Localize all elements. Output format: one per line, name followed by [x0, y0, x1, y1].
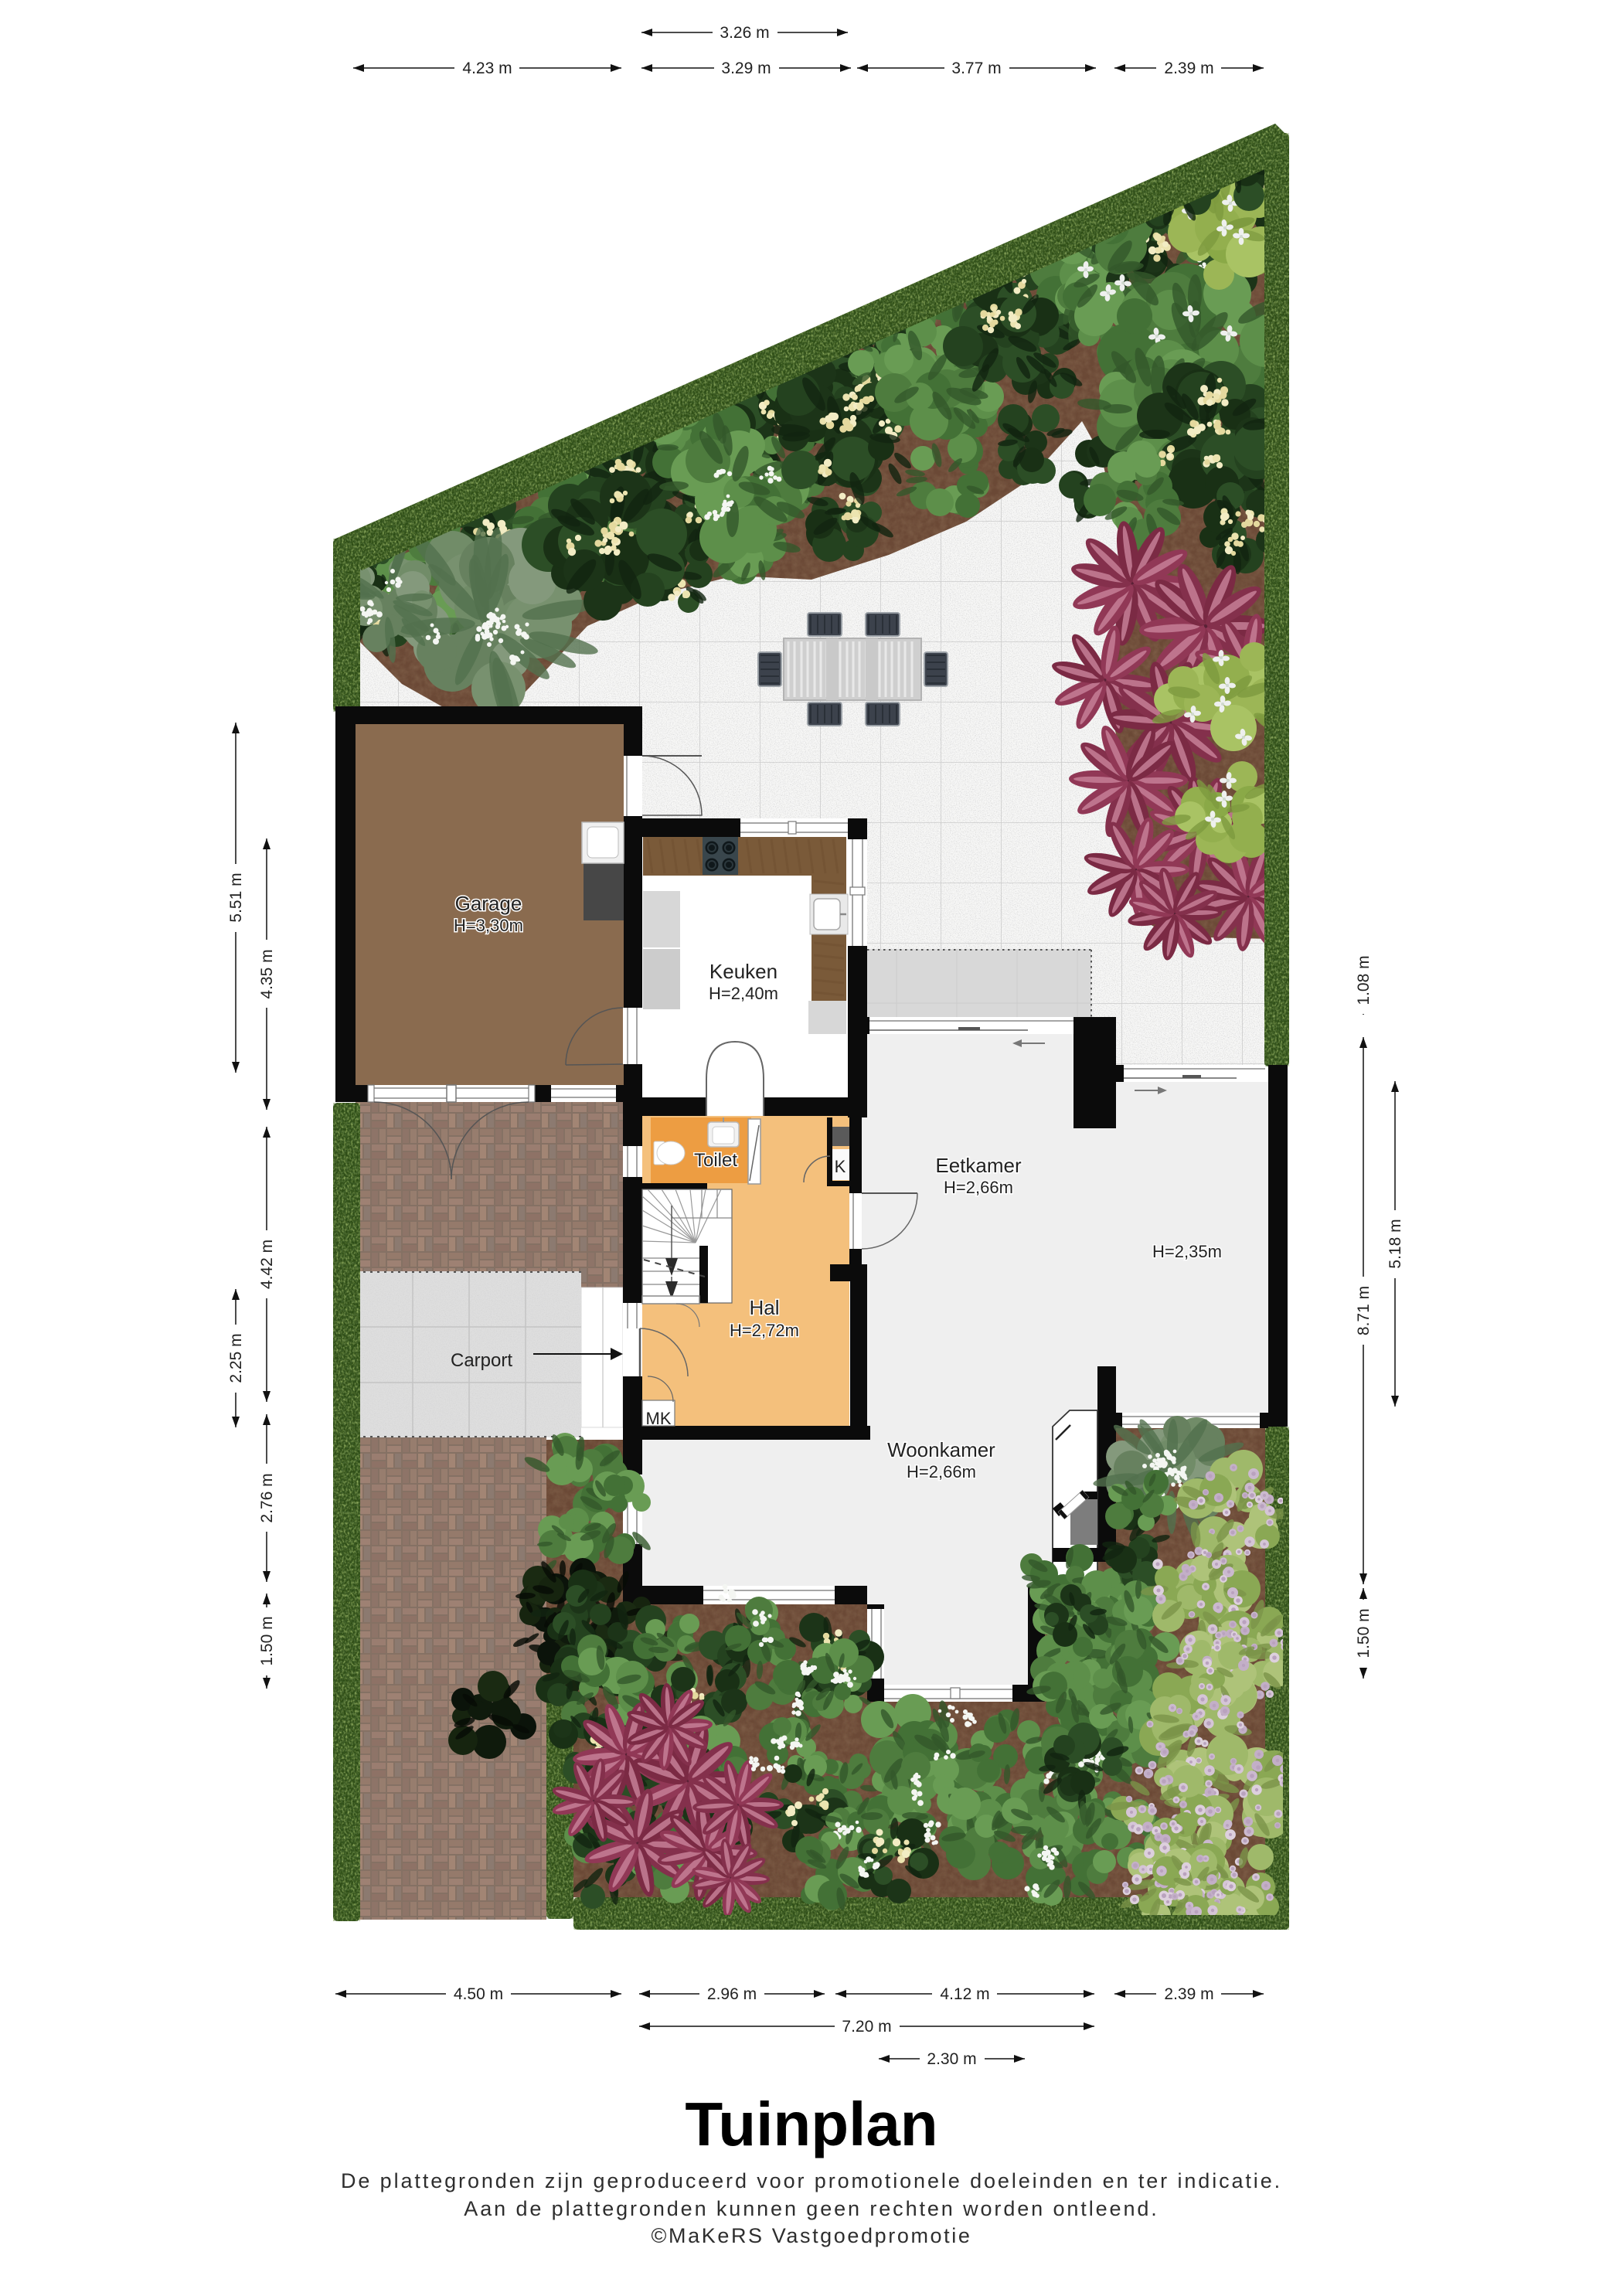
svg-text:4.50 m: 4.50 m: [454, 1985, 503, 2003]
svg-text:K: K: [835, 1157, 846, 1176]
svg-text:Tuinplan: Tuinplan: [685, 2090, 937, 2158]
svg-text:H=2,66m: H=2,66m: [907, 1462, 976, 1481]
svg-text:5.18 m: 5.18 m: [1387, 1219, 1404, 1268]
svg-text:2.96 m: 2.96 m: [707, 1985, 757, 2003]
svg-text:Carport: Carport: [451, 1350, 512, 1371]
svg-text:1.50 m: 1.50 m: [258, 1616, 276, 1665]
svg-text:Hal: Hal: [749, 1296, 779, 1319]
svg-text:4.23 m: 4.23 m: [462, 60, 512, 77]
svg-text:3.77 m: 3.77 m: [951, 60, 1001, 77]
svg-text:2.30 m: 2.30 m: [927, 2050, 976, 2068]
svg-text:1.08 m: 1.08 m: [1355, 955, 1373, 1005]
svg-text:7.20 m: 7.20 m: [842, 2018, 891, 2036]
svg-text:De plattegronden zijn geproduc: De plattegronden zijn geproduceerd voor …: [341, 2169, 1282, 2192]
svg-text:2.39 m: 2.39 m: [1164, 1985, 1213, 2003]
svg-text:Keuken: Keuken: [709, 960, 777, 983]
svg-text:Toilet: Toilet: [694, 1150, 737, 1171]
svg-text:H=2,66m: H=2,66m: [944, 1178, 1013, 1197]
svg-text:Eetkamer: Eetkamer: [935, 1154, 1022, 1177]
svg-text:H=2,40m: H=2,40m: [709, 984, 778, 1003]
svg-text:2.76 m: 2.76 m: [258, 1473, 276, 1522]
svg-text:5.51 m: 5.51 m: [227, 872, 245, 922]
svg-text:Aan de plattegronden kunnen ge: Aan de plattegronden kunnen geen rechten…: [464, 2197, 1159, 2220]
svg-text:Garage: Garage: [455, 892, 522, 915]
svg-text:H=3,30m: H=3,30m: [454, 916, 523, 935]
svg-text:Woonkamer: Woonkamer: [887, 1438, 995, 1461]
svg-text:8.71 m: 8.71 m: [1355, 1286, 1373, 1335]
svg-text:1.50 m: 1.50 m: [1355, 1608, 1373, 1658]
svg-text:4.35 m: 4.35 m: [258, 949, 276, 998]
svg-text:4.42 m: 4.42 m: [258, 1240, 276, 1289]
svg-text:2.25 m: 2.25 m: [227, 1333, 245, 1383]
svg-text:H=2,72m: H=2,72m: [730, 1321, 799, 1340]
svg-text:4.12 m: 4.12 m: [940, 1985, 989, 2003]
svg-text:©MaKeRS Vastgoedpromotie: ©MaKeRS Vastgoedpromotie: [652, 2224, 972, 2247]
svg-text:2.39 m: 2.39 m: [1164, 60, 1213, 77]
svg-text:MK: MK: [646, 1409, 672, 1428]
svg-text:3.26 m: 3.26 m: [720, 24, 769, 42]
svg-text:H=2,35m: H=2,35m: [1152, 1242, 1222, 1261]
svg-text:3.29 m: 3.29 m: [721, 60, 771, 77]
